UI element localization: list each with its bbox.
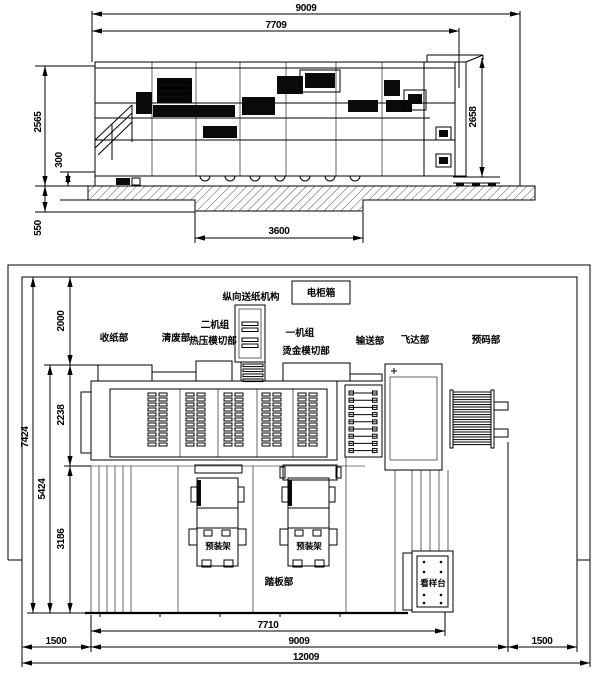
plan-prerack-cart-1: 预装架 xyxy=(189,478,246,567)
svg-text:预装架: 预装架 xyxy=(296,541,322,552)
svg-text:1500: 1500 xyxy=(45,636,67,647)
label-feeder: 飞达部 xyxy=(401,334,430,346)
svg-text:2565: 2565 xyxy=(33,111,44,133)
plan-sample-table: 看样台 xyxy=(403,551,453,612)
label-unit2-line1: 二机组 xyxy=(201,319,230,331)
plan-conveyor-section xyxy=(345,385,382,457)
svg-text:7709: 7709 xyxy=(265,20,287,31)
svg-text:7710: 7710 xyxy=(257,620,279,631)
label-stripping: 清废部 xyxy=(162,332,191,344)
svg-text:9009: 9009 xyxy=(288,636,310,647)
dim-elevation-height-right: 2658 xyxy=(468,58,482,177)
plan-section-labels: 纵向送纸机构 收纸部 清废部 二机组 热压模切部 一机组 烫金模切部 输送部 飞… xyxy=(100,291,501,357)
plan-prestack-section xyxy=(450,390,508,448)
plan-front-area: 预装架 预装架 xyxy=(27,457,453,617)
label-unit2-line2: 热压模切部 xyxy=(189,335,237,347)
elevation-machine-body xyxy=(95,55,500,186)
dim-plan-right-clearance: 1500 xyxy=(508,636,577,647)
svg-text:2658: 2658 xyxy=(468,106,479,128)
dim-elevation-total-width: 9009 xyxy=(92,3,520,186)
label-feed-mechanism: 纵向送纸机构 xyxy=(222,291,280,303)
elevation-ground xyxy=(88,176,535,211)
svg-text:550: 550 xyxy=(33,219,44,236)
svg-text:300: 300 xyxy=(54,151,65,168)
svg-text:1500: 1500 xyxy=(531,636,553,647)
plan-delivery-block xyxy=(98,365,152,381)
machine-layout-drawing: 9009 7709 xyxy=(0,0,600,677)
elevation-pallet xyxy=(453,177,500,186)
svg-text:2238: 2238 xyxy=(56,404,67,426)
svg-text:7424: 7424 xyxy=(20,426,31,448)
plan-feeder-section xyxy=(385,364,442,470)
dim-plan-front-depth: 3186 xyxy=(56,466,70,613)
plan-view: 7424 5424 2000 2238 3186 xyxy=(8,265,590,667)
label-conveyor: 输送部 xyxy=(356,335,385,347)
svg-text:12009: 12009 xyxy=(293,652,320,663)
dim-plan-rear-clearance: 2000 xyxy=(44,277,98,365)
svg-text:3600: 3600 xyxy=(268,226,290,237)
svg-text:5424: 5424 xyxy=(37,478,48,500)
elevation-view: 9009 7709 xyxy=(33,3,535,243)
svg-text:电柜箱: 电柜箱 xyxy=(307,287,336,299)
svg-text:2000: 2000 xyxy=(56,310,67,332)
label-footboard: 踏板部 xyxy=(265,576,294,588)
svg-text:9009: 9009 xyxy=(295,3,317,14)
plan-unit1-block xyxy=(283,363,350,381)
drawing-canvas: 9009 7709 xyxy=(0,0,600,677)
dim-plan-left-clearance: 1500 xyxy=(22,636,91,647)
label-unit1-line2: 烫金模切部 xyxy=(282,345,330,357)
elevation-railing xyxy=(95,105,132,160)
plan-electrical-cabinet: 电柜箱 xyxy=(292,281,350,304)
dim-elevation-inner-width: 7709 xyxy=(92,20,459,88)
dim-plan-sub-depth: 5424 xyxy=(37,365,50,613)
dim-elevation-pit-width: 3600 xyxy=(195,212,363,243)
dim-plan-body-depth: 2238 xyxy=(56,365,91,466)
plan-unit2-block xyxy=(196,361,232,381)
svg-text:预装架: 预装架 xyxy=(205,541,231,552)
label-prestack: 预码部 xyxy=(472,334,501,346)
svg-text:3186: 3186 xyxy=(56,528,67,550)
dim-plan-machine-length: 7710 xyxy=(91,612,445,652)
plan-machine: 电柜箱 xyxy=(81,281,508,470)
dim-plan-total-length: 12009 xyxy=(22,652,590,663)
svg-text:看样台: 看样台 xyxy=(419,578,446,589)
plan-feed-mechanism xyxy=(235,305,265,382)
plan-prerack-cart-2: 预装架 xyxy=(280,478,337,567)
label-unit1-line1: 一机组 xyxy=(286,327,315,339)
dim-elevation-base-height: 300 xyxy=(54,151,95,186)
label-delivery: 收纸部 xyxy=(100,332,129,344)
